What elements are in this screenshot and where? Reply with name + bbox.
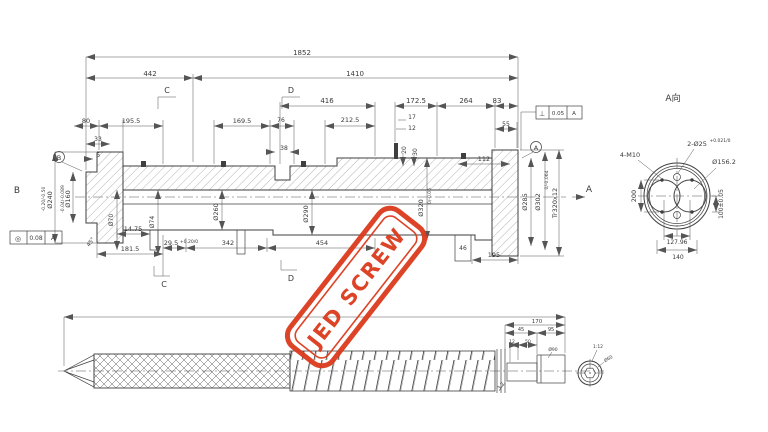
- dim-140-label: 140: [672, 254, 684, 261]
- dia-160-tol: -0.04/-0.089: [60, 185, 66, 213]
- dim-172-5-label: 172.5: [406, 97, 426, 105]
- section-view-a: A向 4-M10 2-Ø25 +0.021/0 Ø156.2 200 1: [620, 92, 736, 261]
- screw-dim-95: 95: [548, 327, 554, 333]
- gdt-concentricity-symbol: ◎: [15, 235, 21, 243]
- dim-416-label: 416: [320, 97, 334, 105]
- dia-240-label: Ø240: [46, 191, 54, 209]
- screw-shank-dia: Ø90: [548, 346, 557, 353]
- barrel-left-flange: [86, 152, 123, 243]
- dia-302-tol: 0/-0.064: [544, 170, 550, 189]
- top-stud-4: [461, 153, 466, 159]
- dim-342-label: 342: [222, 239, 234, 247]
- tall-stud: [394, 143, 398, 159]
- dim-30-label: 30: [412, 148, 419, 156]
- screw-taper-label: 1:12: [593, 344, 603, 350]
- bolt-callout: 4-M10: [620, 151, 640, 159]
- dim-1410-label: 1410: [346, 70, 364, 78]
- dim-overall-label: 1852: [293, 49, 311, 57]
- bottom-stud-1: [150, 230, 158, 250]
- dia-74-label: Ø74: [149, 216, 156, 229]
- dim-112-label: 112: [478, 155, 490, 163]
- dim-17-label: 17: [408, 114, 416, 121]
- dim-29-5-label: 29.5: [164, 239, 178, 247]
- top-stud-2: [221, 161, 226, 167]
- dim-442-label: 442: [143, 70, 156, 78]
- dim-33-label: 33: [94, 136, 102, 143]
- dia-260-label: Ø260: [212, 203, 220, 221]
- screw-dim-50: 50: [525, 339, 531, 345]
- gdt-concentricity-value: 0.08: [29, 235, 43, 242]
- dim-6-label: 6: [96, 152, 100, 159]
- dim-127-96-label: 127.96: [667, 239, 688, 246]
- gdt-perpendicularity-value: 0.05: [552, 111, 565, 117]
- drawing-page: 1852 442 1410 C D 416 172.5 264 83 80 19…: [0, 0, 768, 432]
- screw-dim-12: 12: [509, 339, 515, 345]
- chamfer-45-label: 45°: [86, 237, 97, 249]
- barrel-wall-hatched: [123, 158, 492, 190]
- dim-200-label: 200: [630, 190, 638, 202]
- bolt-hole-1: [660, 178, 663, 181]
- dia-302-label: Ø302: [534, 193, 542, 211]
- section-d-bottom-label: D: [288, 274, 294, 283]
- top-stud-3: [301, 161, 306, 167]
- dim-454-label: 454: [316, 239, 328, 247]
- dim-20-label: 20: [401, 146, 408, 154]
- view-a-label: A: [586, 185, 593, 195]
- screw-dim-45: 45: [518, 327, 524, 333]
- dim-212-5-label: 212.5: [341, 116, 360, 124]
- screw-mixing-section: [94, 354, 290, 388]
- bolt-hole-3: [660, 210, 663, 213]
- section-c-top-label: C: [164, 86, 170, 95]
- dim-264-label: 264: [459, 97, 473, 105]
- gdt-perpendicularity-symbol: ⊥: [539, 110, 545, 118]
- dim-55-label: 55: [502, 121, 510, 128]
- dim-195-label: 195: [488, 251, 500, 259]
- dim-169-5-label: 169.5: [233, 117, 252, 125]
- screw-end-dia: Ø60: [602, 353, 614, 364]
- pin-tolerance: +0.021/0: [709, 138, 730, 144]
- bolt-hole-4: [690, 210, 693, 213]
- screw-flight-section: [290, 351, 495, 391]
- pin-callout: 2-Ø25: [687, 140, 707, 148]
- section-view-title: A向: [665, 92, 680, 104]
- dim-14-75-label: 14.75: [124, 225, 143, 233]
- datum-a-letter: A: [534, 144, 539, 152]
- dim-12-label: 12: [408, 125, 416, 132]
- dia-70-label: Ø70: [108, 214, 115, 227]
- screw-roughness: 3.2: [496, 381, 506, 391]
- dia-290-label: Ø290: [302, 205, 310, 223]
- bottom-key: [237, 230, 245, 254]
- bore-diameter-callout: Ø156.2: [712, 158, 736, 166]
- dim-100-label: 100±0.05: [718, 189, 725, 219]
- dim-181-5-label: 181.5: [121, 245, 140, 253]
- dim-80-label: 80: [82, 117, 90, 125]
- dia-240-tol: -0.20/-0.50: [41, 186, 47, 211]
- dia-tr320-label: Tr320x12: [551, 188, 559, 219]
- screw-shaft: [507, 363, 537, 381]
- dia-320-tol: 0/-0.06: [427, 188, 433, 204]
- section-d-top-label: D: [288, 86, 294, 95]
- bolt-hole-2: [690, 178, 693, 181]
- top-stud-1: [141, 161, 146, 167]
- dim-195-5-label: 195.5: [122, 117, 141, 125]
- dim-29-5-tol: +0.20/0: [180, 239, 198, 245]
- section-c-bottom-label: C: [161, 280, 167, 289]
- datum-b-letter: B: [57, 154, 61, 162]
- dim-76-label: 76: [277, 117, 285, 124]
- dia-320-label: Ø320: [417, 199, 425, 217]
- screw-dim-170: 170: [532, 319, 543, 325]
- gdt-perpendicularity-datum: A: [572, 111, 576, 117]
- cad-drawing-canvas: 1852 442 1410 C D 416 172.5 264 83 80 19…: [0, 0, 768, 432]
- view-b-label: B: [14, 186, 20, 196]
- dim-83-label: 83: [493, 97, 502, 105]
- dim-38-label: 38: [280, 145, 288, 152]
- jed-screw-stamp: JED SCREW: [282, 203, 430, 372]
- dia-285-label: Ø285: [521, 193, 529, 211]
- barrel-right-flange: [492, 150, 518, 256]
- dim-46-label: 46: [459, 245, 467, 252]
